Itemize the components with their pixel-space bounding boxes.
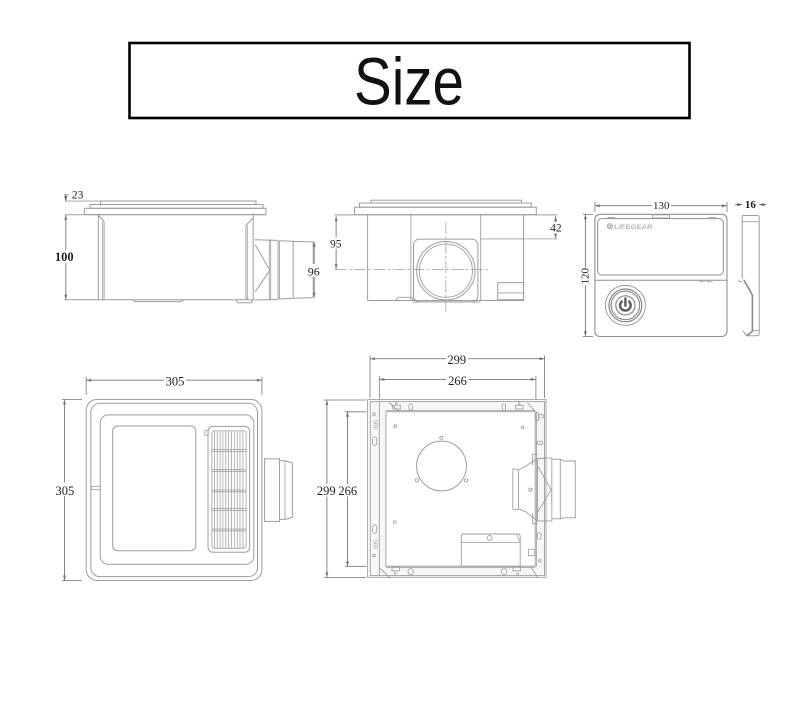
svg-text:305: 305 — [166, 374, 185, 388]
svg-text:266: 266 — [338, 484, 357, 498]
svg-text:95: 95 — [330, 239, 342, 251]
svg-text:100: 100 — [55, 250, 74, 264]
svg-text:42: 42 — [550, 223, 562, 235]
svg-text:305: 305 — [373, 540, 380, 550]
svg-text:16: 16 — [745, 199, 757, 211]
svg-text:299: 299 — [447, 353, 466, 367]
svg-text:Size: Size — [354, 45, 464, 120]
svg-text:96: 96 — [308, 265, 320, 279]
svg-text:305: 305 — [56, 484, 75, 498]
svg-text:130: 130 — [653, 200, 670, 212]
svg-text:23: 23 — [72, 189, 84, 201]
svg-text:266: 266 — [448, 374, 467, 388]
svg-text:299: 299 — [317, 484, 336, 498]
svg-text:305: 305 — [373, 420, 380, 430]
svg-text:120: 120 — [580, 268, 592, 285]
svg-text:LIFEGEAR: LIFEGEAR — [614, 225, 653, 231]
